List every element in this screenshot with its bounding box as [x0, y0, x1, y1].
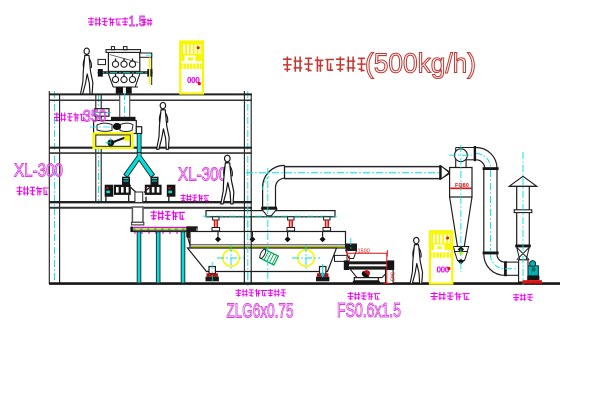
- svg-text:XL-300: XL-300: [14, 160, 63, 181]
- svg-text:350: 350: [83, 107, 107, 126]
- svg-text:(500kg/h): (500kg/h): [365, 48, 476, 79]
- svg-text:1.5: 1.5: [129, 13, 146, 30]
- svg-text:XL-300: XL-300: [178, 164, 227, 185]
- svg-text:FS0.6x1.5: FS0.6x1.5: [337, 299, 401, 322]
- svg-text:345: 345: [389, 272, 395, 281]
- svg-text:FQ80: FQ80: [455, 183, 469, 189]
- svg-text:000: 000: [437, 266, 450, 275]
- svg-text:ZLG6x0.75: ZLG6x0.75: [227, 300, 294, 323]
- svg-text:1500: 1500: [358, 249, 370, 255]
